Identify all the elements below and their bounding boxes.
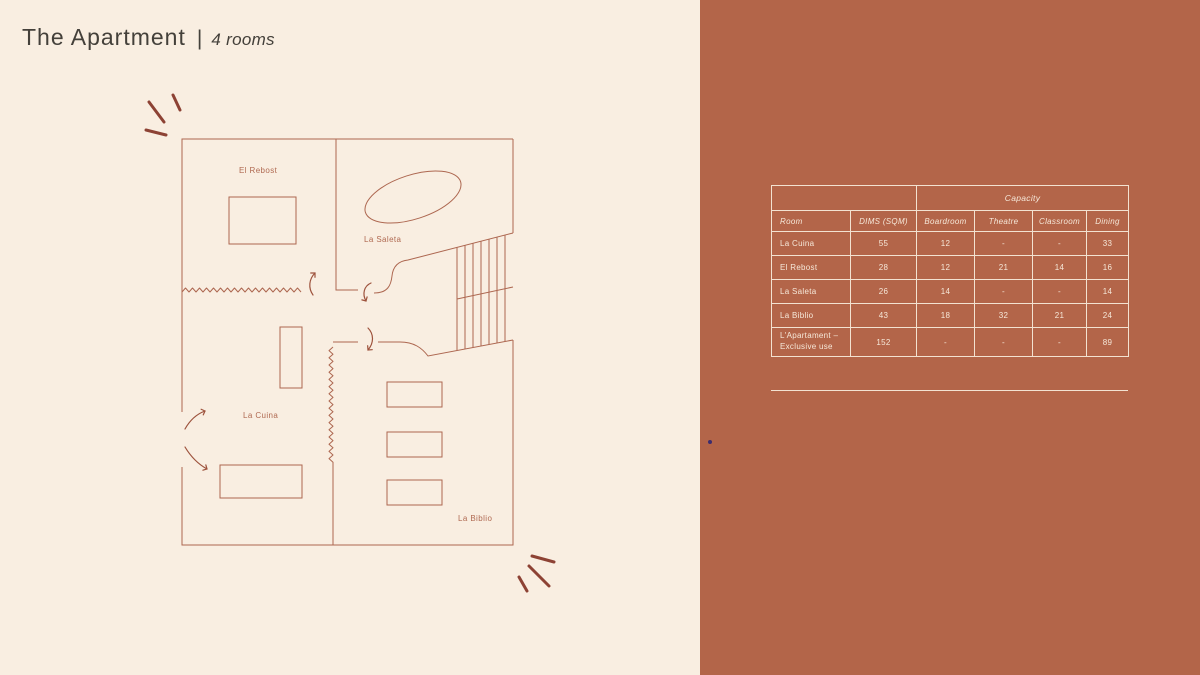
table-cell: La Biblio bbox=[772, 304, 851, 328]
table-cell: - bbox=[1033, 280, 1087, 304]
table-row: La Saleta 26 14 - - 14 bbox=[772, 280, 1129, 304]
table-cell: - bbox=[975, 328, 1033, 357]
capacity-panel: Capacity Room DIMS (SQM) Boardroom Theat… bbox=[700, 0, 1200, 675]
arrow-up-center bbox=[310, 273, 315, 295]
floorplan-panel: The Apartment | 4 rooms bbox=[0, 0, 700, 675]
column-header-dims: DIMS (SQM) bbox=[851, 211, 917, 232]
table-cell: 24 bbox=[1087, 304, 1129, 328]
cuina-counter bbox=[280, 327, 302, 388]
saleta-table bbox=[359, 161, 468, 234]
table-cell: 14 bbox=[1033, 256, 1087, 280]
column-header-classroom: Classroom bbox=[1033, 211, 1087, 232]
column-header-boardroom: Boardroom bbox=[917, 211, 975, 232]
room-label-saleta: La Saleta bbox=[364, 235, 401, 244]
capacity-table: Capacity Room DIMS (SQM) Boardroom Theat… bbox=[771, 185, 1129, 357]
table-cell: 26 bbox=[851, 280, 917, 304]
table-cell: 12 bbox=[917, 256, 975, 280]
furniture bbox=[220, 161, 467, 505]
table-cell: 16 bbox=[1087, 256, 1129, 280]
table-cell: 32 bbox=[975, 304, 1033, 328]
table-row: La Biblio 43 18 32 21 24 bbox=[772, 304, 1129, 328]
table-cell: - bbox=[1033, 328, 1087, 357]
cursor-dot bbox=[708, 440, 712, 444]
room-label-biblio: La Biblio bbox=[458, 514, 492, 523]
table-cell: 33 bbox=[1087, 232, 1129, 256]
arrow-biblio-door bbox=[368, 328, 373, 350]
table-header-row: Room DIMS (SQM) Boardroom Theatre Classr… bbox=[772, 211, 1129, 232]
cuina-table bbox=[220, 465, 302, 498]
rebost-table bbox=[229, 197, 296, 244]
capacity-spacer-cell bbox=[772, 186, 917, 211]
table-cell: L'Apartament – Exclusive use bbox=[772, 328, 851, 357]
capacity-group-header: Capacity bbox=[917, 186, 1129, 211]
table-cell: 14 bbox=[1087, 280, 1129, 304]
table-row: L'Apartament – Exclusive use 152 - - - 8… bbox=[772, 328, 1129, 357]
column-header-room: Room bbox=[772, 211, 851, 232]
table-cell: 89 bbox=[1087, 328, 1129, 357]
table-underline bbox=[771, 390, 1128, 391]
table-cell: - bbox=[975, 232, 1033, 256]
table-cell: 55 bbox=[851, 232, 917, 256]
table-cell: 21 bbox=[975, 256, 1033, 280]
table-cell: La Saleta bbox=[772, 280, 851, 304]
room-label-rebost: El Rebost bbox=[239, 166, 277, 175]
floorplan-drawing bbox=[0, 0, 700, 675]
table-cell: El Rebost bbox=[772, 256, 851, 280]
sparkle-top-icon bbox=[146, 95, 180, 135]
sparkle-bottom-icon bbox=[519, 556, 554, 591]
table-cell: 28 bbox=[851, 256, 917, 280]
arrow-saleta-door bbox=[364, 283, 371, 301]
table-cell: 21 bbox=[1033, 304, 1087, 328]
table-cell: 18 bbox=[917, 304, 975, 328]
biblio-table-3 bbox=[387, 480, 442, 505]
table-row: La Cuina 55 12 - - 33 bbox=[772, 232, 1129, 256]
biblio-table-2 bbox=[387, 432, 442, 457]
room-label-cuina: La Cuina bbox=[243, 411, 278, 420]
table-cell: - bbox=[975, 280, 1033, 304]
table-cell: 43 bbox=[851, 304, 917, 328]
column-header-dining: Dining bbox=[1087, 211, 1129, 232]
table-cell: La Cuina bbox=[772, 232, 851, 256]
walls bbox=[182, 139, 513, 545]
flow-arrows bbox=[185, 273, 373, 469]
table-cell: - bbox=[1033, 232, 1087, 256]
biblio-table-1 bbox=[387, 382, 442, 407]
table-cell: 152 bbox=[851, 328, 917, 357]
arrow-entry-down bbox=[185, 447, 207, 469]
stairs bbox=[457, 235, 513, 351]
table-cell: - bbox=[917, 328, 975, 357]
arrow-entry-up bbox=[185, 411, 205, 429]
table-row: El Rebost 28 12 21 14 16 bbox=[772, 256, 1129, 280]
capacity-group-row: Capacity bbox=[772, 186, 1129, 211]
column-header-theatre: Theatre bbox=[975, 211, 1033, 232]
table-cell: 14 bbox=[917, 280, 975, 304]
table-cell: 12 bbox=[917, 232, 975, 256]
